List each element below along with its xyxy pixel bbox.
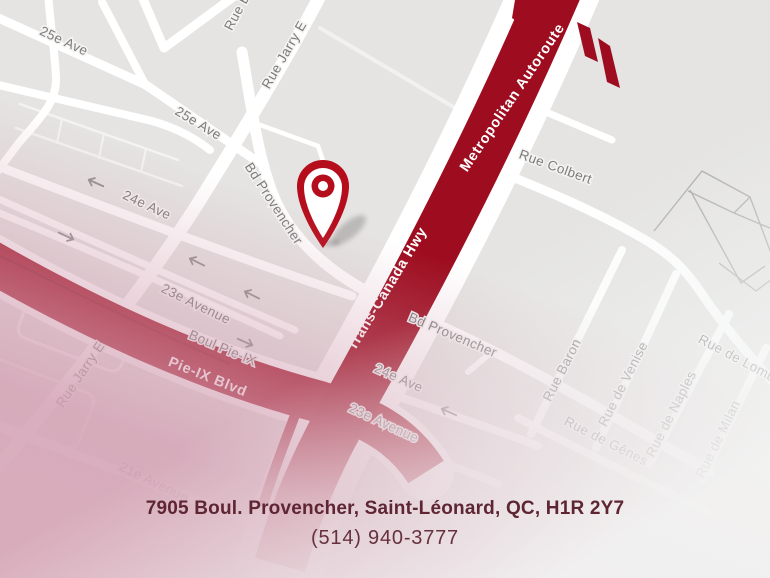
address-text: 7905 Boul. Provencher, Saint-Léonard, QC…	[0, 498, 770, 520]
location-footer: 7905 Boul. Provencher, Saint-Léonard, QC…	[0, 498, 770, 550]
map-svg: 25e Ave 25e Ave Rue B Rue Jarry E Bd Pro…	[0, 0, 770, 578]
map-canvas[interactable]: 25e Ave 25e Ave Rue B Rue Jarry E Bd Pro…	[0, 0, 770, 578]
pin-ring-hole	[318, 181, 328, 191]
phone-text: (514) 940-3777	[0, 527, 770, 550]
